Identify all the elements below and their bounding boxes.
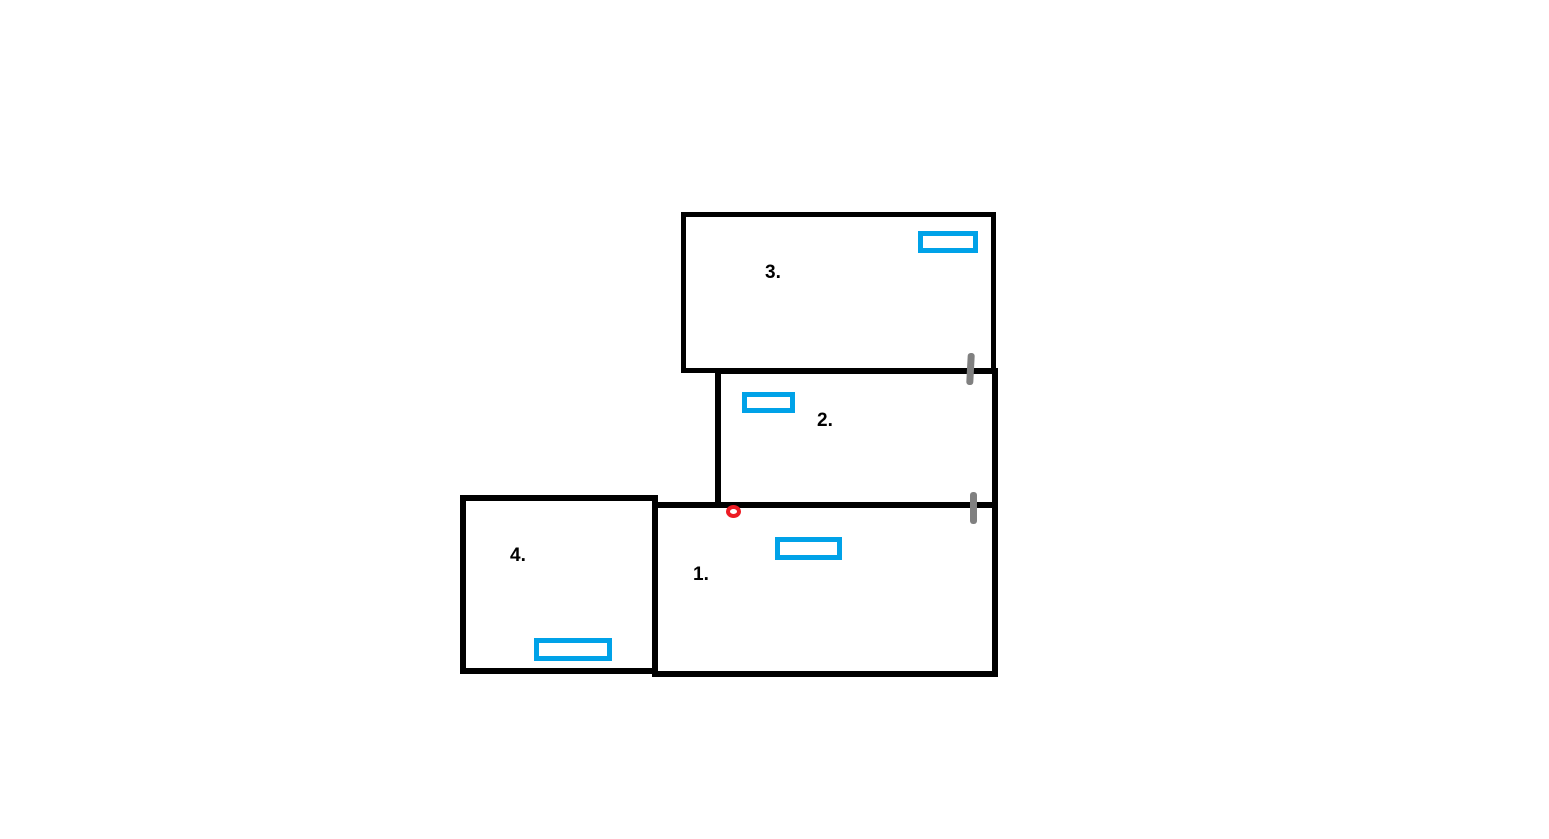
entry-marker-icon bbox=[726, 505, 741, 518]
window-icon bbox=[918, 231, 978, 253]
room-3-label: 3. bbox=[765, 266, 781, 280]
room-1-label: 1. bbox=[693, 568, 709, 582]
room-1-outline bbox=[652, 502, 998, 677]
room-2-label: 2. bbox=[817, 414, 833, 428]
room-2-outline bbox=[715, 368, 998, 508]
window-icon bbox=[775, 537, 842, 560]
room-4-label: 4. bbox=[510, 549, 526, 563]
door-marker-icon bbox=[970, 492, 977, 524]
floor-plan-canvas: 1. 2. 3. 4. bbox=[0, 0, 1549, 839]
window-icon bbox=[742, 392, 795, 413]
window-icon bbox=[534, 638, 612, 661]
